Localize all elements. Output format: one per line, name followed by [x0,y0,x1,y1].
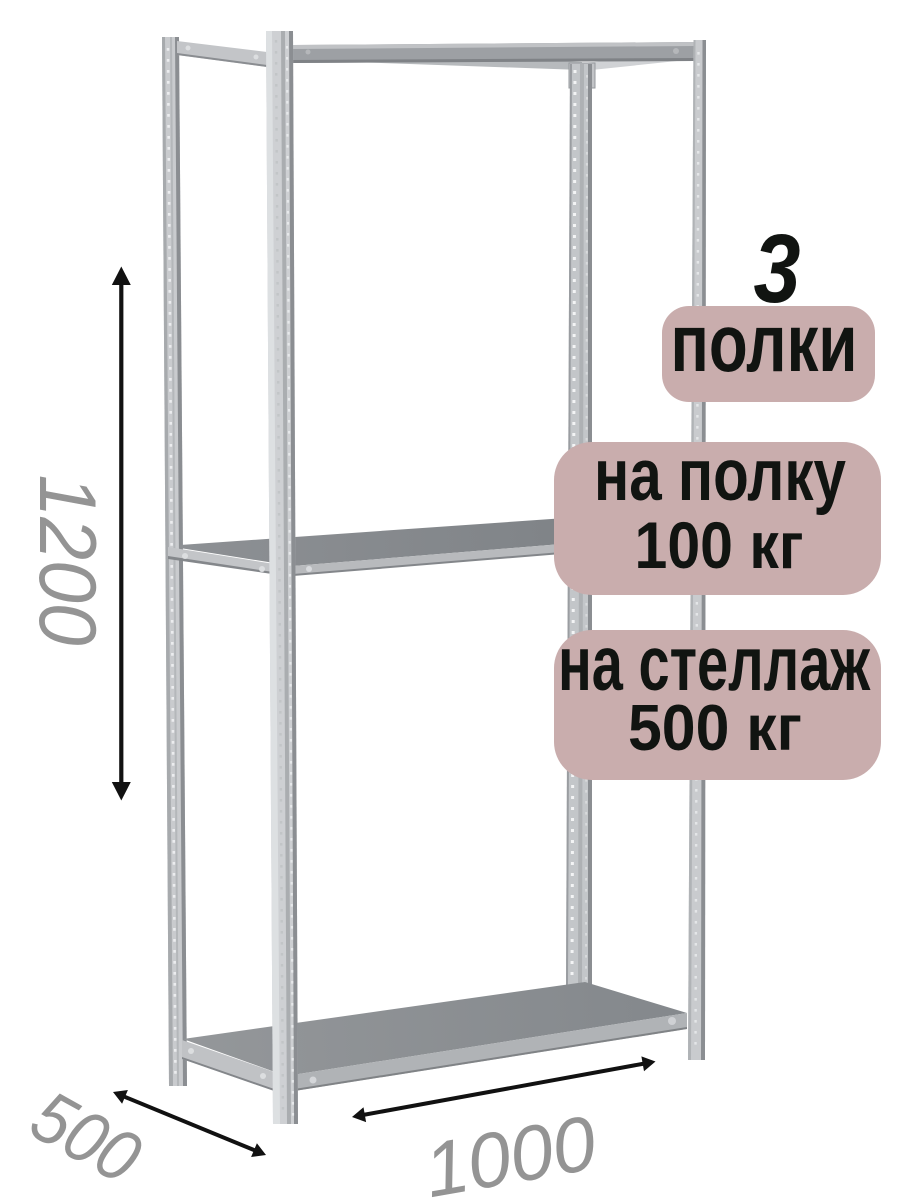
svg-text:полки: полки [671,298,858,389]
svg-text:на полку: на полку [594,435,846,516]
svg-text:500 кг: 500 кг [628,691,802,764]
svg-text:1200: 1200 [22,475,112,646]
svg-text:100 кг: 100 кг [635,508,804,582]
